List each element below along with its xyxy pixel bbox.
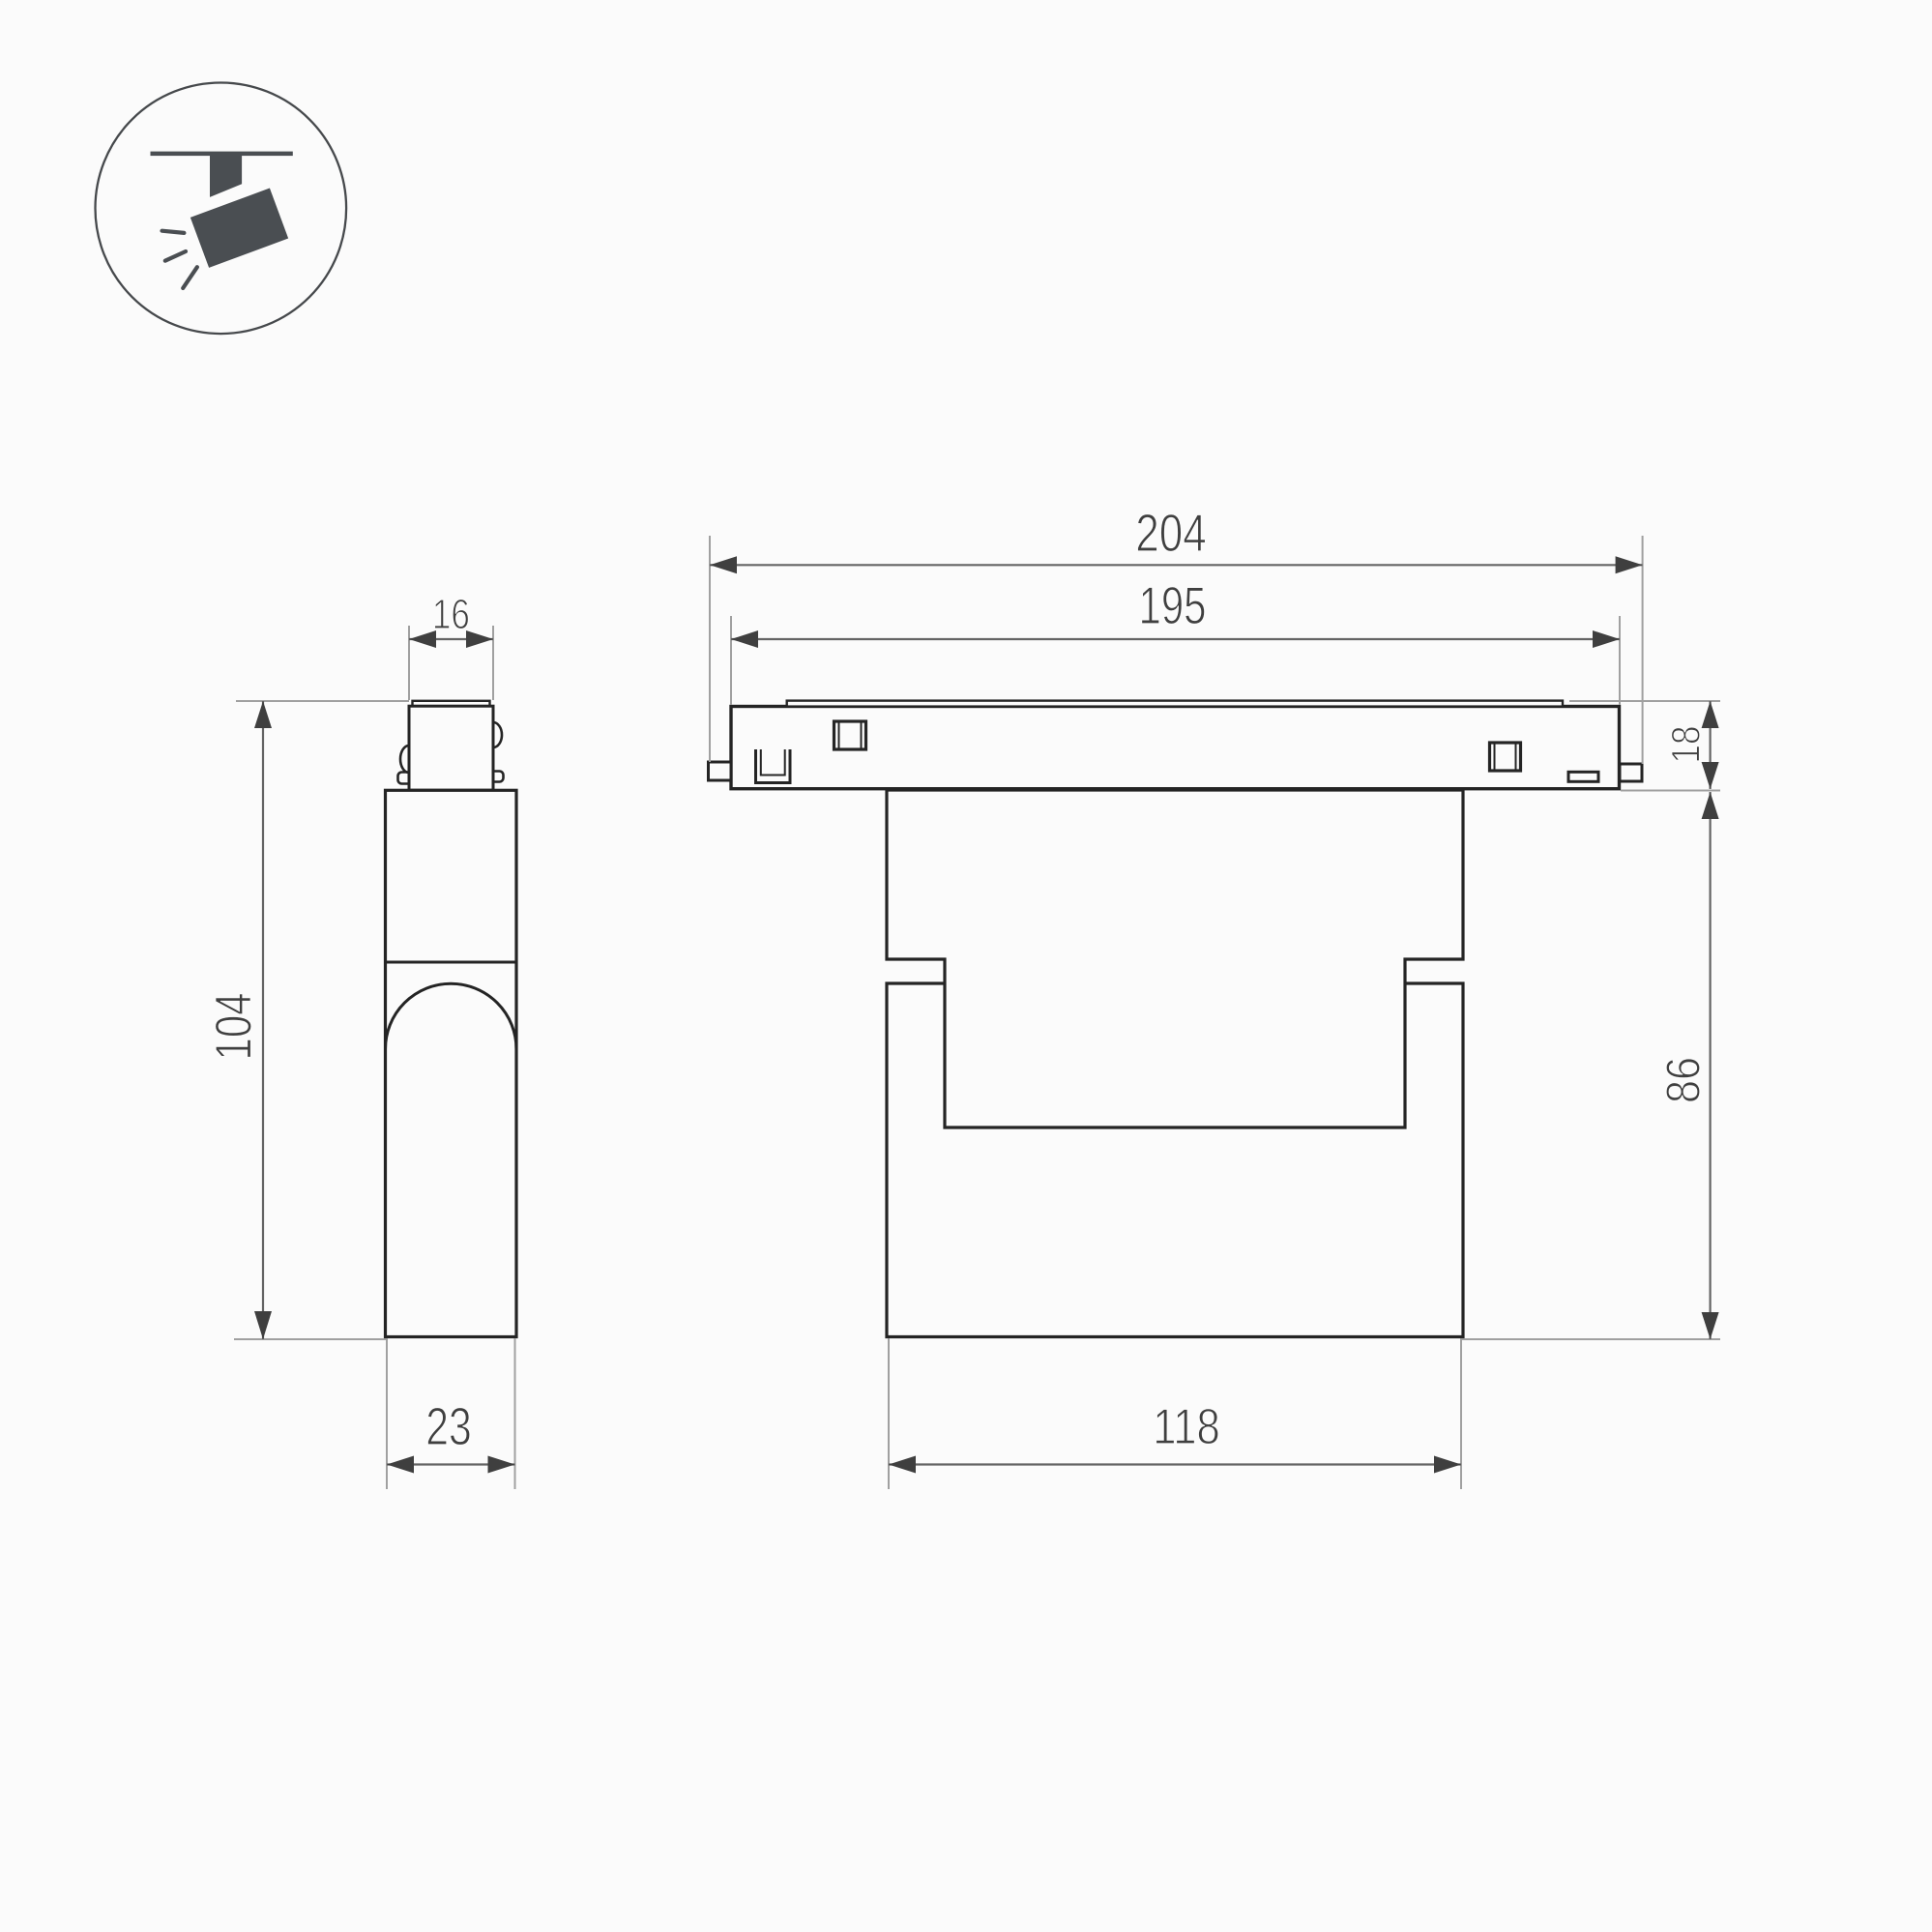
svg-text:195: 195 (1139, 576, 1207, 635)
svg-text:16: 16 (432, 592, 470, 638)
svg-text:86: 86 (1656, 1057, 1710, 1103)
svg-text:104: 104 (206, 993, 263, 1061)
svg-text:118: 118 (1153, 1399, 1220, 1455)
svg-text:18: 18 (1663, 726, 1709, 764)
svg-text:204: 204 (1135, 504, 1207, 563)
svg-text:23: 23 (425, 1397, 472, 1456)
